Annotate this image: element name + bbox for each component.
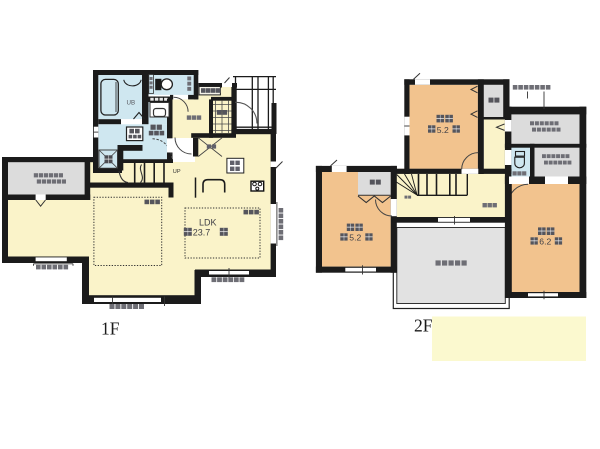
svg-text:UB: UB [127, 100, 136, 107]
svg-text:6.2: 6.2 [539, 237, 551, 247]
svg-text:5.2: 5.2 [349, 233, 361, 243]
svg-text:UP: UP [173, 169, 181, 175]
svg-text:5.2: 5.2 [437, 125, 449, 135]
svg-text:1F: 1F [101, 319, 120, 339]
svg-text:LDK: LDK [199, 218, 217, 228]
svg-text:23.7: 23.7 [193, 228, 211, 238]
svg-text:2F: 2F [414, 316, 433, 336]
